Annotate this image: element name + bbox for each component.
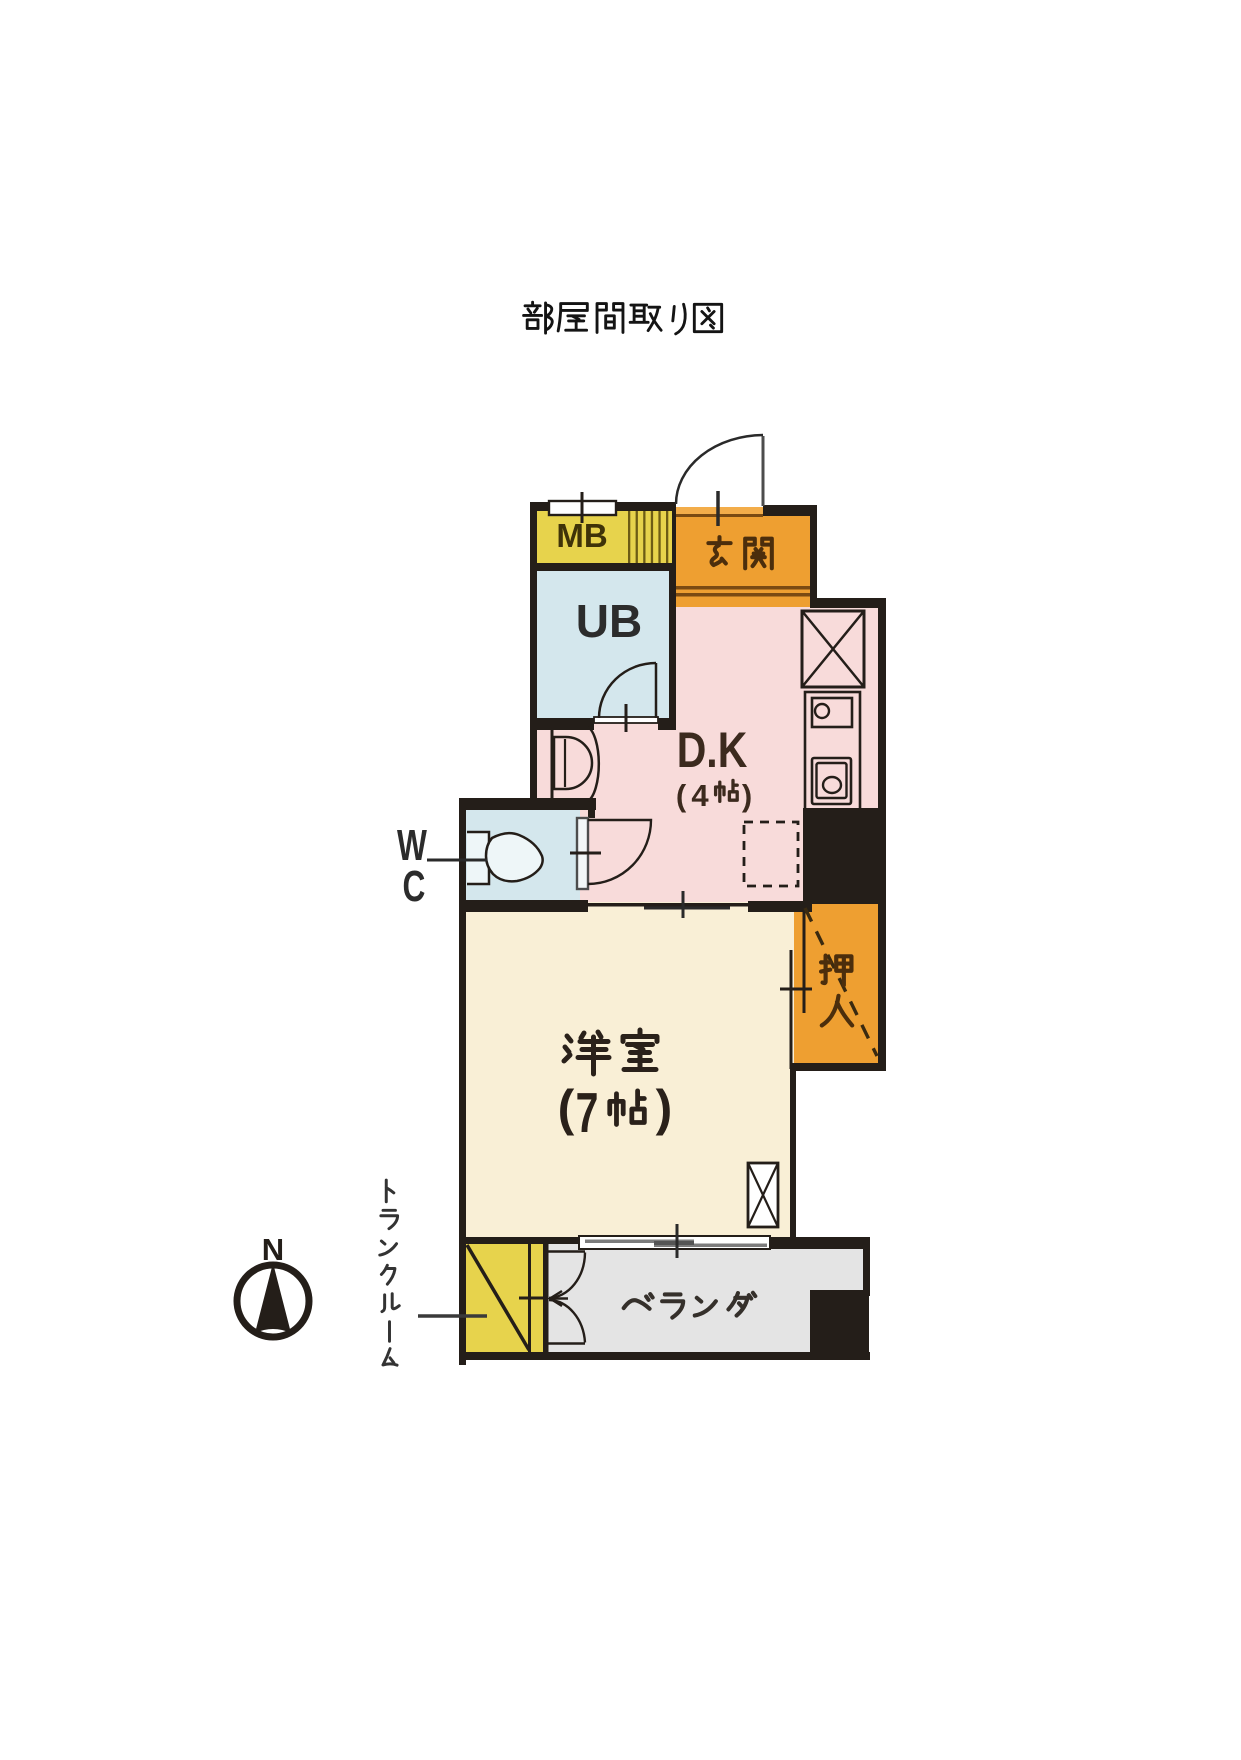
- svg-text:C: C: [403, 862, 426, 911]
- svg-text:): ): [742, 778, 752, 813]
- svg-text:N: N: [262, 1232, 284, 1267]
- svg-text:UB: UB: [576, 595, 642, 647]
- svg-text:MB: MB: [556, 517, 607, 554]
- svg-text:7: 7: [576, 1080, 599, 1144]
- svg-text:(: (: [676, 778, 687, 813]
- svg-text:4: 4: [691, 778, 709, 813]
- svg-text:): ): [656, 1080, 673, 1136]
- svg-text:D.K: D.K: [677, 722, 748, 778]
- svg-text:(: (: [558, 1080, 575, 1136]
